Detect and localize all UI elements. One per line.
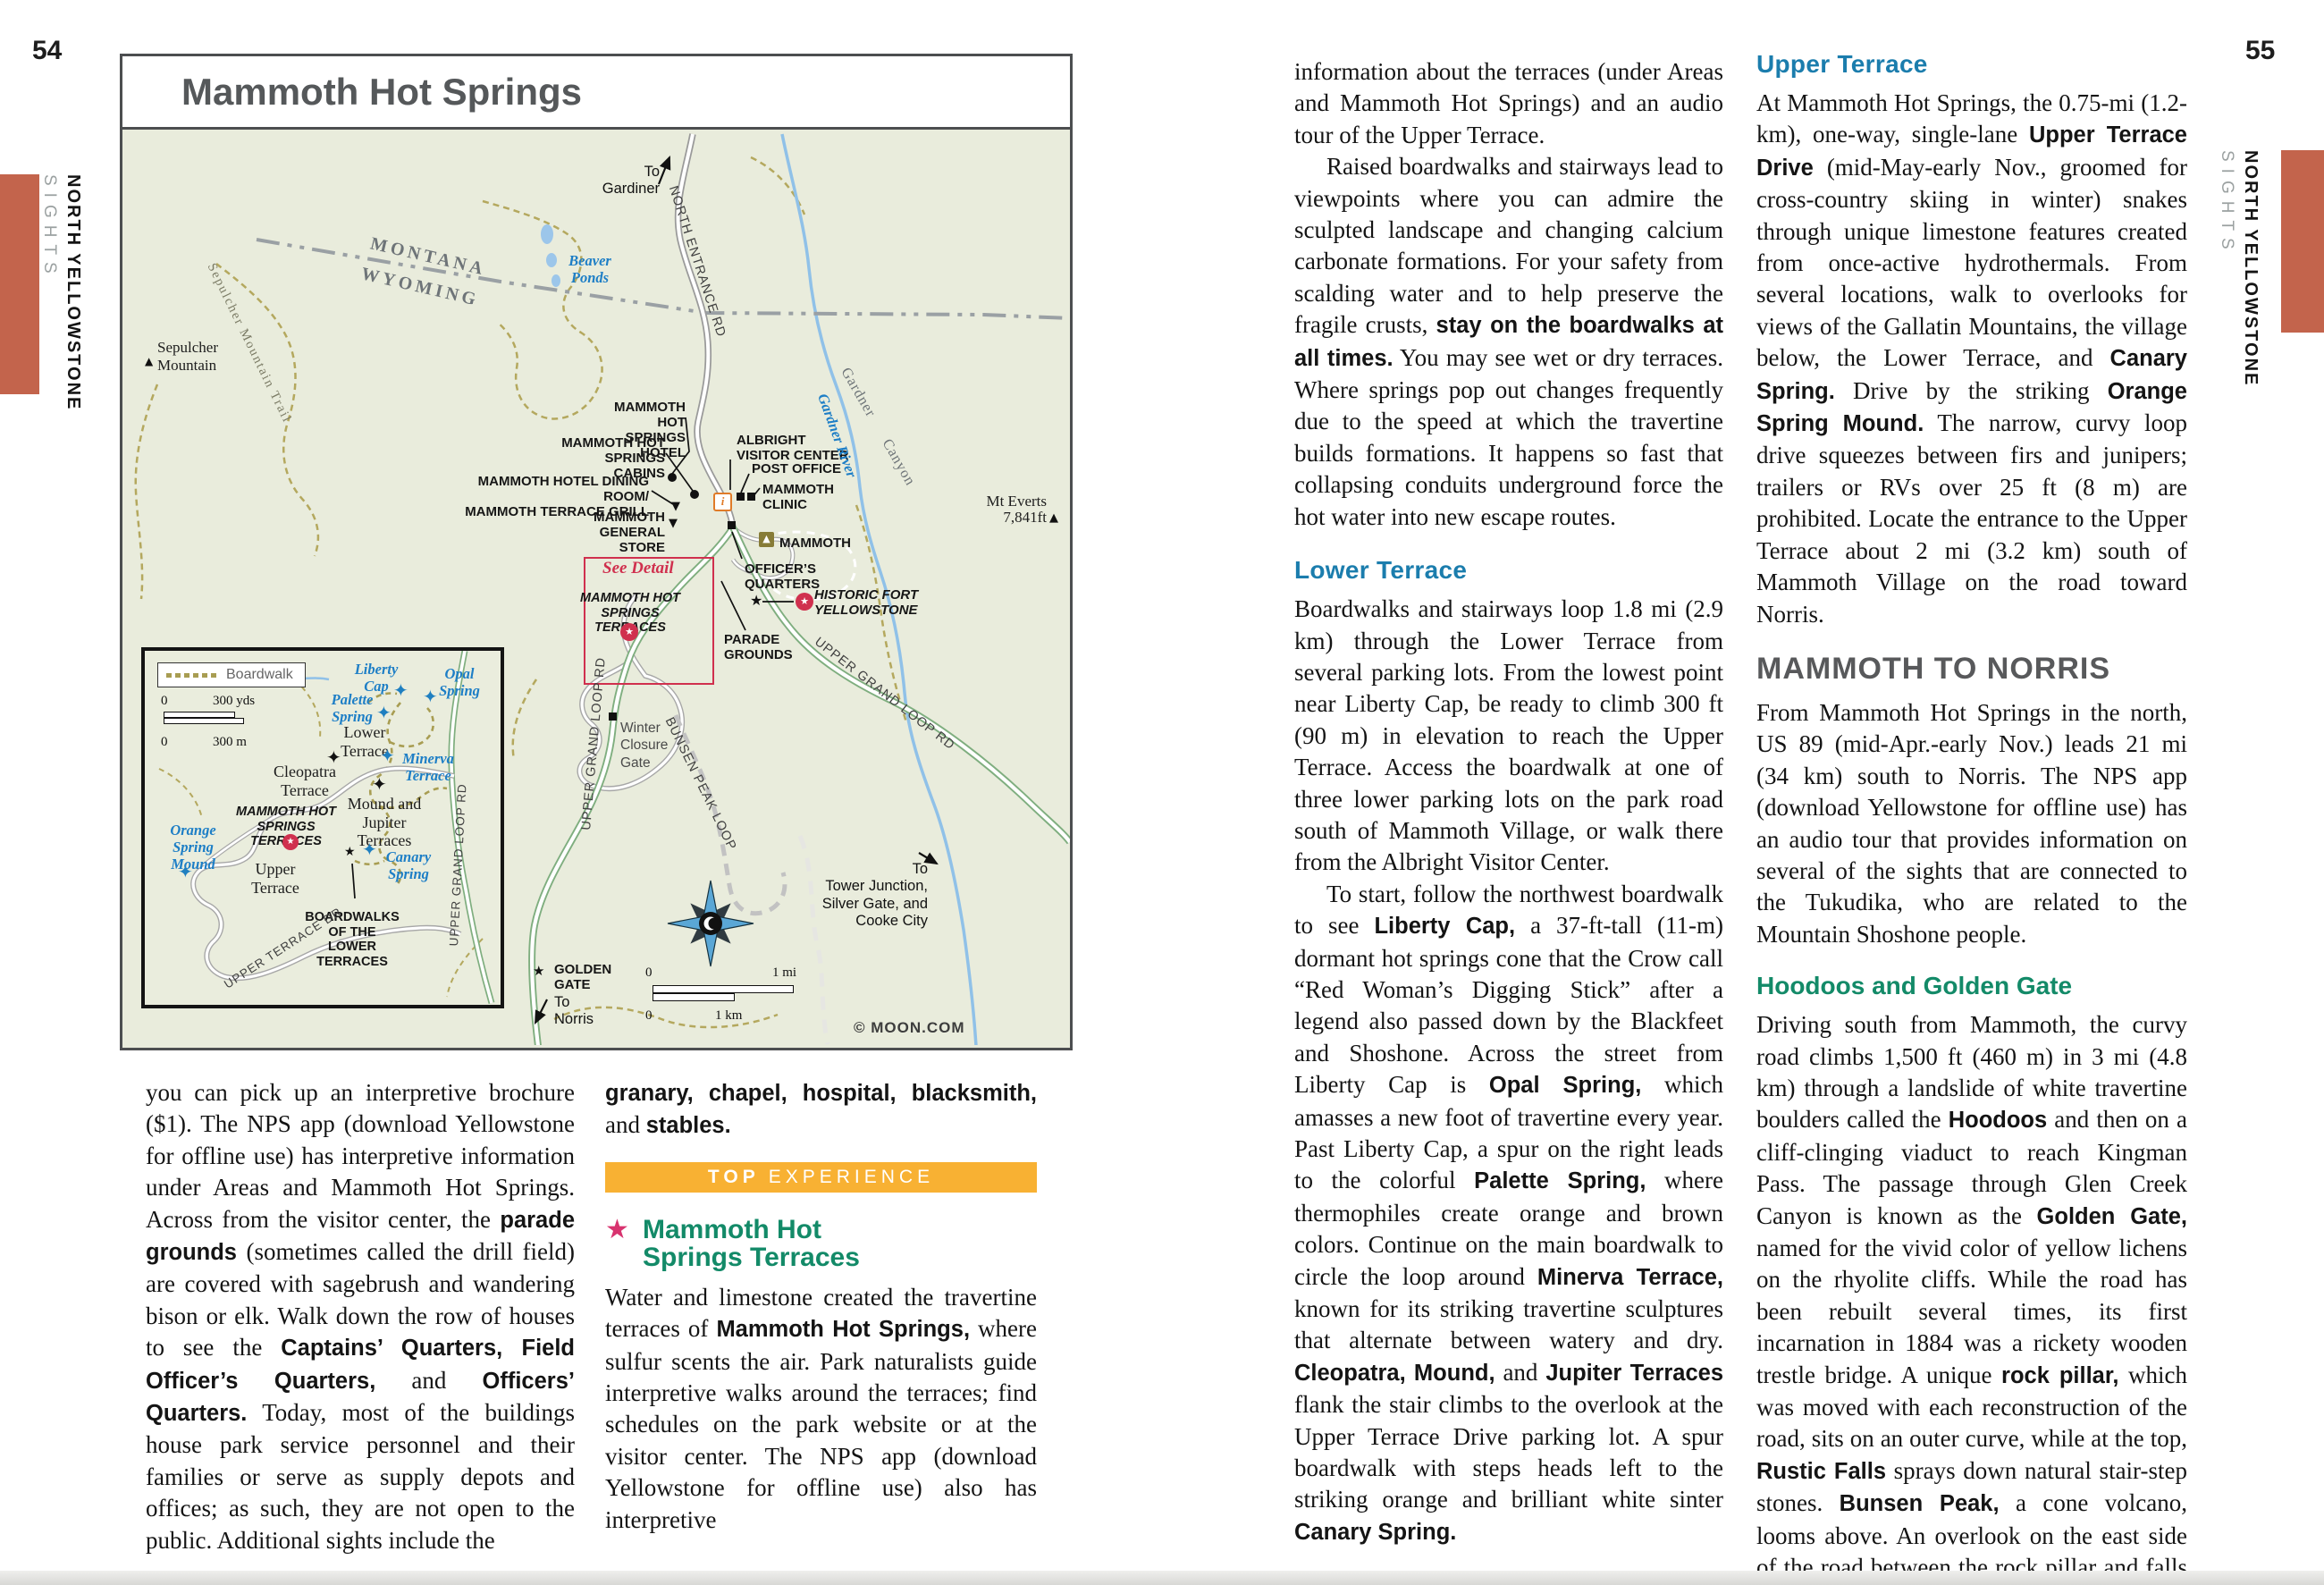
beaver-pond-1 (541, 224, 553, 244)
red-star-badge-fort: ★ (796, 593, 813, 611)
mammoth-clinic-label: MAMMOTH CLINIC (762, 482, 834, 512)
parade-grounds-label: PARADE GROUNDS (724, 632, 793, 662)
map-title-band: Mammoth Hot Springs (122, 56, 1070, 130)
red-star-badge-terraces: ★ (620, 623, 638, 641)
inset-scale-m-zero: 0 (161, 735, 168, 750)
inset-scale-m-label: 300 m (213, 735, 247, 750)
orange-mound-icon: ✦ (178, 863, 193, 881)
right-page-column-1: information about the terraces (under Ar… (1294, 56, 1723, 1548)
post-office-label: POST OFFICE (752, 461, 841, 476)
red-star-badge-inset: ★ (282, 834, 299, 850)
inset-scale-yds-label: 300 yds (213, 694, 255, 709)
scale-mi-zero: 0 (645, 965, 653, 981)
map-credit: © MOON.COM (854, 1019, 965, 1037)
right-page-column-2: Upper Terrace At Mammoth Hot Springs, th… (1756, 50, 2187, 1585)
heading-line-2: Springs Terraces (643, 1243, 860, 1272)
palette-spring-label: Palette Spring (326, 692, 378, 726)
beaver-ponds-label: Beaver Ponds (567, 253, 613, 287)
thumb-tab-left (0, 174, 39, 394)
banner-top-word: TOP (708, 1167, 760, 1188)
paragraph: Raised boardwalks and stairways lead to … (1294, 151, 1723, 533)
section-label-right: SIGHTS (2217, 150, 2236, 257)
banner-experience-word: EXPERIENCE (769, 1167, 934, 1188)
cleopatra-terrace-icon: ✦ (326, 748, 341, 766)
mound-jupiter-label: Mound and Jupiter Terraces (345, 795, 424, 850)
paragraph: you can pick up an interpretive brochure… (146, 1077, 575, 1556)
left-page-column-b: granary, chapel, hospital, blacksmith, a… (605, 1077, 1037, 1536)
canary-leader-line (352, 864, 355, 898)
officers-quarters-label: OFFICER’S QUARTERS (745, 561, 820, 592)
info-icon: i (713, 493, 732, 511)
poi-square-officers (728, 521, 736, 529)
compass-rose (668, 881, 754, 966)
to-gardiner-label: To Gardiner (581, 164, 660, 198)
heading-text: Mammoth Hot Springs Terraces (643, 1216, 860, 1271)
page-bottom-edge (0, 1571, 2324, 1585)
boardwalk-trailhead-star-icon: ★ (344, 846, 356, 858)
page-number-right: 55 (2245, 36, 2275, 66)
scale-bar-mi (653, 985, 794, 993)
boardwalk-symbol (166, 673, 218, 678)
cleopatra-terrace-label: Cleopatra Terrace (269, 763, 341, 799)
bunsen-peak-loop-road (676, 715, 785, 914)
poi-triangle-store: ▼ (669, 518, 678, 529)
beaver-pond-3 (552, 274, 560, 287)
scale-km-one: 1 km (715, 1008, 742, 1024)
poi-dot-hotel (668, 473, 677, 482)
sepulcher-mountain-label: Sepulcher Mountain (157, 339, 218, 374)
minerva-spring-icon: ✦ (380, 746, 395, 764)
canary-spring-icon: ✦ (362, 840, 377, 858)
mountain-peak-icon: ▲ (145, 356, 153, 367)
liberty-cap-spring-icon: ✦ (393, 681, 408, 699)
golden-gate-label: GOLDEN GATE (554, 962, 611, 992)
heading-lower-terrace: Lower Terrace (1294, 556, 1723, 585)
top-experience-banner: TOP EXPERIENCE (605, 1162, 1037, 1193)
poi-dot-cabins (690, 490, 699, 499)
inset-scale-bar-m (164, 718, 244, 724)
poi-triangle-dining: ▼ (671, 501, 680, 512)
book-spread: 54 SIGHTS NORTH YELLOWSTONE 55 SIGHTS NO… (0, 0, 2324, 1585)
scale-mi-one: 1 mi (772, 965, 796, 981)
golden-gate-star-icon: ★ (533, 965, 544, 978)
scale-km-zero: 0 (645, 1008, 653, 1024)
historic-fort-label: HISTORIC FORT YELLOWSTONE (814, 587, 918, 618)
fort-star-icon: ★ (750, 594, 762, 608)
poi-square-post-office (747, 493, 755, 501)
paragraph: information about the terraces (under Ar… (1294, 56, 1723, 151)
paragraph: From Mammoth Hot Springs in the north, U… (1756, 697, 2187, 950)
paragraph: granary, chapel, hospital, blacksmith, a… (605, 1077, 1037, 1142)
to-tower-junction-label: To Tower Junction, Silver Gate, and Cook… (821, 861, 928, 931)
paragraph: At Mammoth Hot Springs, the 0.75-mi (1.2… (1756, 88, 2187, 630)
campground-label: MAMMOTH (779, 535, 851, 551)
general-store-label: MAMMOTH GENERAL STORE (561, 510, 665, 555)
poi-square-winter-gate (609, 712, 617, 721)
paragraph: To start, follow the northwest boardwalk… (1294, 879, 1723, 1549)
paragraph: Driving south from Mammoth, the curvy ro… (1756, 1009, 2187, 1585)
paragraph: Water and limestone created the traverti… (605, 1282, 1037, 1536)
beaver-pond-2 (546, 253, 557, 267)
upper-terrace-inset-label: Upper Terrace (249, 860, 301, 897)
orange-spring-mound-label: Orange Spring Mound (166, 822, 220, 873)
page-number-left: 54 (32, 36, 62, 66)
palette-spring-icon: ✦ (376, 704, 392, 721)
region-label-left: NORTH YELLOWSTONE (63, 174, 83, 410)
inset-scale-yds-zero: 0 (161, 694, 168, 709)
scale-bar-km (653, 993, 735, 1001)
top-experience-star-icon: ★ (605, 1216, 643, 1244)
heading-line-1: Mammoth Hot (643, 1215, 821, 1244)
left-page-column-a: you can pick up an interpretive brochure… (146, 1077, 575, 1556)
region-label-right: NORTH YELLOWSTONE (2240, 150, 2261, 386)
heading-mammoth-to-norris: MAMMOTH TO NORRIS (1756, 652, 2187, 687)
inset-legend: Boardwalk (157, 662, 306, 687)
section-heading-terraces: ★ Mammoth Hot Springs Terraces (605, 1216, 1037, 1271)
canary-spring-label: Canary Spring (381, 849, 436, 883)
thumb-tab-right (2281, 150, 2324, 333)
minerva-terrace-label: Minerva Terrace (398, 751, 459, 785)
poi-square-visitor-center (737, 493, 745, 501)
to-norris-label: To Norris (554, 994, 594, 1029)
see-detail-label: See Detail (602, 559, 674, 578)
campground-icon: ▲ (759, 532, 774, 547)
winter-closure-gate-label: Winter Closure Gate (620, 720, 668, 771)
heading-hoodoos-golden-gate: Hoodoos and Golden Gate (1756, 972, 2187, 1000)
mt-everts-label: Mt Everts (979, 493, 1047, 510)
mt-everts-elevation: 7,841ft (979, 509, 1047, 527)
opal-spring-label: Opal Spring (434, 666, 484, 700)
section-label-left: SIGHTS (39, 174, 59, 281)
mt-everts-peak-icon: ▲ (1049, 512, 1058, 524)
mound-jupiter-icon: ✦ (372, 775, 387, 793)
inset-scale-bar-yds (164, 712, 235, 718)
opal-spring-icon: ✦ (423, 687, 438, 705)
boardwalk-legend-label: Boardwalk (226, 667, 293, 683)
map-title: Mammoth Hot Springs (122, 56, 1070, 127)
paragraph: Boardwalks and stairways loop 1.8 mi (2.… (1294, 594, 1723, 879)
heading-upper-terrace: Upper Terrace (1756, 50, 2187, 79)
